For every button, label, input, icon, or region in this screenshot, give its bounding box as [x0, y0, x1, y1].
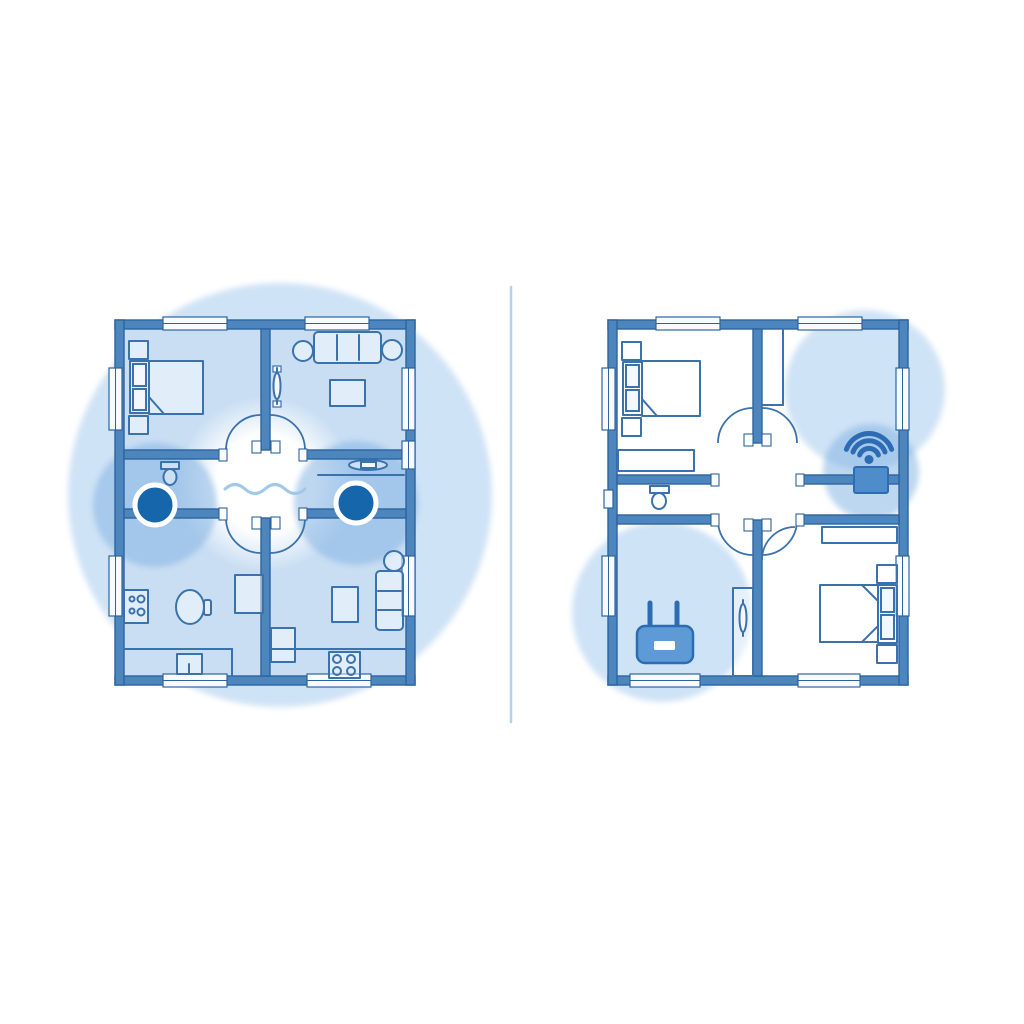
illustration-canvas [0, 0, 1024, 1024]
wall-segment [617, 475, 718, 484]
window [798, 674, 860, 687]
toilet-icon [161, 462, 179, 485]
side-table [384, 551, 404, 571]
nightstand [129, 416, 148, 434]
wall-segment [608, 320, 908, 329]
door-jamb [796, 474, 804, 486]
window [896, 368, 909, 430]
table [332, 587, 358, 622]
pillow [881, 615, 894, 639]
left-floorplan [68, 283, 492, 707]
window [109, 556, 122, 616]
dresser [822, 527, 897, 543]
cabinet [271, 628, 295, 662]
door-jamb [711, 474, 719, 486]
door-jamb [762, 434, 771, 446]
door-jamb [299, 508, 307, 520]
pillow [626, 365, 639, 387]
sofa-vertical [376, 571, 403, 630]
door-handle [740, 604, 747, 632]
wall-segment [261, 329, 270, 450]
chair [204, 600, 211, 615]
door-jamb [219, 449, 227, 461]
pillow [133, 389, 146, 410]
nightstand [129, 341, 148, 359]
door-handle [274, 373, 281, 399]
pillow [133, 364, 146, 386]
window [402, 368, 415, 430]
door-jamb [299, 449, 307, 461]
sofa [314, 332, 381, 363]
wall-segment [617, 515, 718, 524]
door-jamb [219, 508, 227, 520]
window [163, 317, 227, 330]
right-floorplan [572, 310, 945, 702]
wall-segment [305, 450, 406, 459]
side-table [293, 341, 313, 361]
wifi-extender-icon [854, 467, 888, 493]
wall-segment [124, 450, 225, 459]
kitchen-table [235, 575, 263, 613]
wall-segment [115, 320, 415, 329]
nightstand [877, 565, 897, 583]
pillow [626, 390, 639, 411]
wall-segment [753, 520, 762, 676]
window [630, 674, 700, 687]
pillow [881, 588, 894, 612]
mesh-node-icon [135, 485, 175, 525]
window [602, 368, 615, 430]
wifi-coverage-diagram [0, 0, 1024, 1024]
toilet-icon [650, 486, 669, 509]
dresser [618, 450, 694, 471]
door-jamb [762, 519, 771, 531]
router-indicator [654, 641, 675, 650]
window [798, 317, 862, 330]
dining-table [176, 590, 204, 624]
window [305, 317, 369, 330]
window [656, 317, 720, 330]
door-jamb [744, 519, 753, 531]
door-jamb [711, 514, 719, 526]
window [109, 368, 122, 430]
nightstand [622, 418, 641, 436]
coffee-table [330, 380, 365, 406]
sliding-door [733, 588, 753, 676]
window [602, 556, 615, 616]
door-jamb [271, 441, 280, 453]
wall-segment [753, 329, 762, 443]
window [163, 674, 227, 687]
door-jamb [744, 434, 753, 446]
stove [124, 590, 148, 623]
window [402, 441, 415, 469]
nightstand [622, 342, 641, 360]
pocket-door [273, 366, 281, 407]
bedroom-furniture-2 [820, 527, 897, 663]
side-table [382, 340, 402, 360]
wall-segment [798, 515, 899, 524]
door-jamb [252, 517, 261, 529]
door-jamb [271, 517, 280, 529]
window [604, 490, 613, 508]
nightstand [877, 645, 897, 663]
mesh-node-icon [336, 483, 376, 523]
door-jamb [252, 441, 261, 453]
door-jamb [796, 514, 804, 526]
bedroom-furniture [618, 342, 700, 471]
